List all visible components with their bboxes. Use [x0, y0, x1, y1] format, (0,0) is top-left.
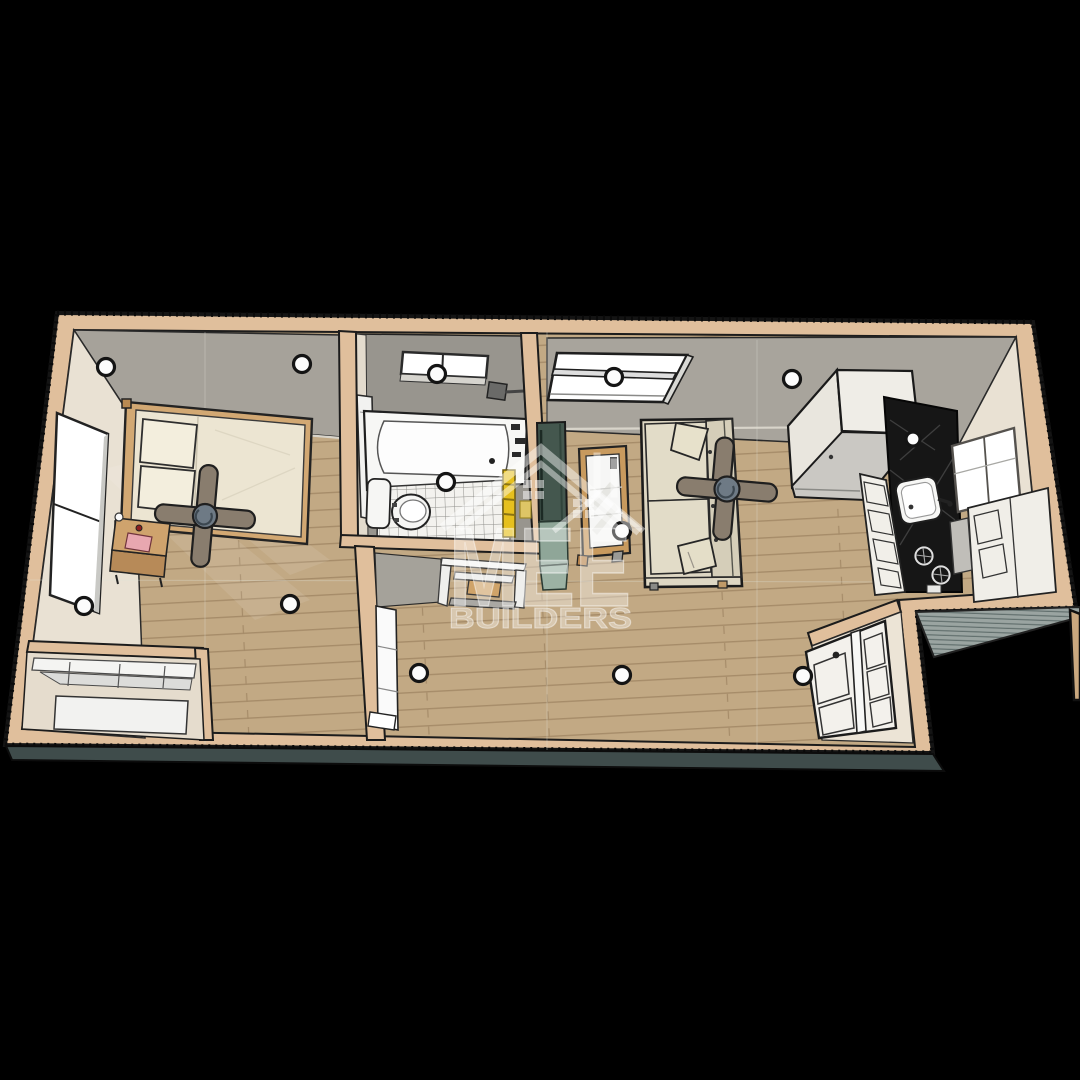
svg-text:BUILDERS: BUILDERS	[449, 603, 632, 635]
